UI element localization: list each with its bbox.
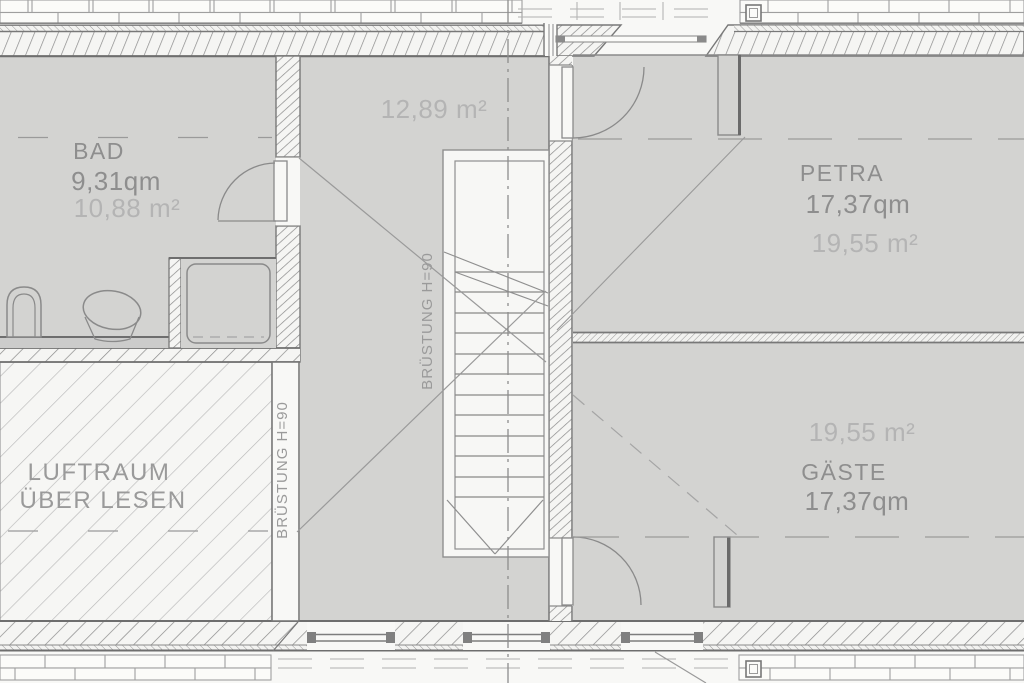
svg-text:12,89 m²: 12,89 m² xyxy=(381,94,488,124)
svg-text:BRÜSTUNG H=90: BRÜSTUNG H=90 xyxy=(418,252,436,390)
svg-text:PETRA: PETRA xyxy=(800,160,884,186)
svg-text:19,55 m²: 19,55 m² xyxy=(812,228,919,258)
svg-text:17,37qm: 17,37qm xyxy=(806,189,911,219)
svg-text:10,88 m²: 10,88 m² xyxy=(74,193,181,223)
svg-text:BAD: BAD xyxy=(73,138,125,164)
svg-text:19,55 m²: 19,55 m² xyxy=(809,417,916,447)
svg-text:LUFTRAUM: LUFTRAUM xyxy=(28,459,171,486)
svg-text:ÜBER LESEN: ÜBER LESEN xyxy=(19,487,186,514)
svg-text:GÄSTE: GÄSTE xyxy=(801,459,886,485)
svg-text:9,31qm: 9,31qm xyxy=(71,166,161,196)
svg-text:BRÜSTUNG H=90: BRÜSTUNG H=90 xyxy=(273,401,291,539)
svg-text:17,37qm: 17,37qm xyxy=(805,486,910,516)
